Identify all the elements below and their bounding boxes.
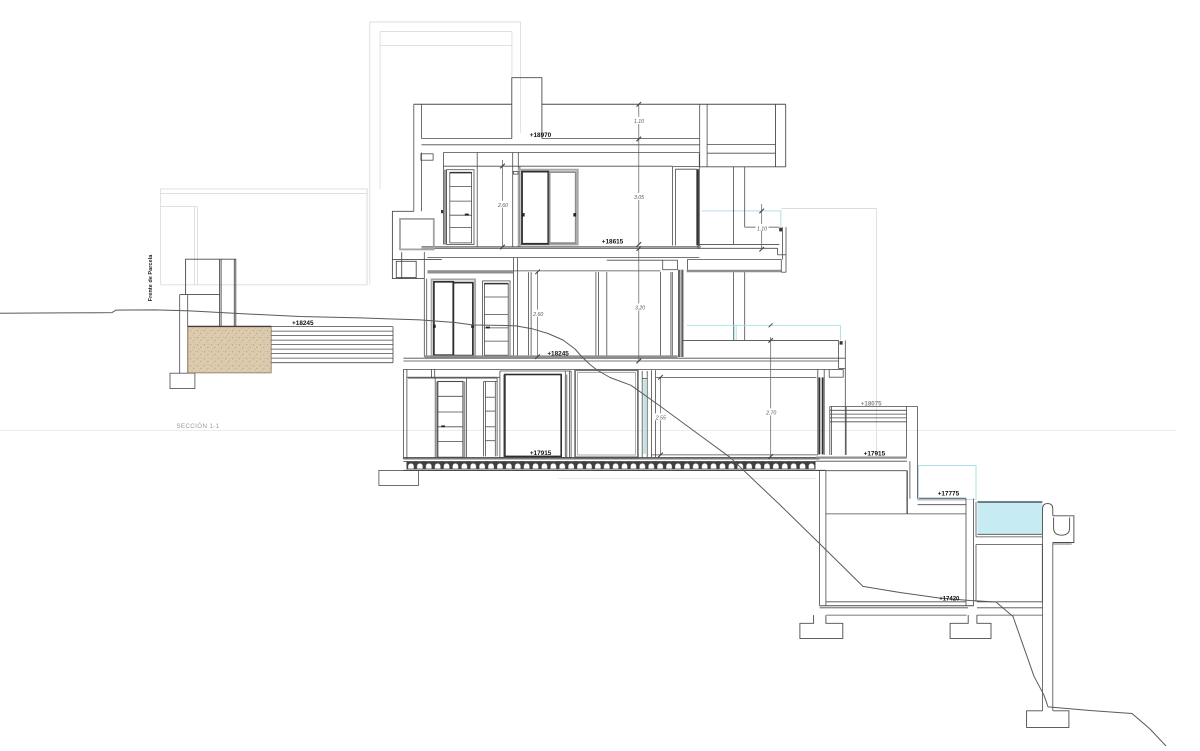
svg-text:+17420: +17420 (939, 596, 960, 602)
svg-text:+17915: +17915 (864, 450, 886, 457)
svg-text:+17775: +17775 (938, 491, 960, 498)
svg-text:+18615: +18615 (602, 239, 624, 246)
svg-text:+18245: +18245 (547, 350, 569, 357)
svg-text:2.70: 2.70 (765, 411, 776, 417)
svg-text:+17915: +17915 (530, 450, 552, 457)
svg-text:2.55: 2.55 (655, 416, 666, 422)
svg-text:2.60: 2.60 (497, 203, 508, 209)
svg-text:3.20: 3.20 (635, 306, 645, 312)
svg-text:1.10: 1.10 (634, 119, 644, 125)
svg-text:1.10: 1.10 (757, 226, 767, 232)
svg-text:+18075: +18075 (861, 401, 882, 408)
svg-text:2.60: 2.60 (532, 312, 543, 318)
svg-text:+18970: +18970 (530, 132, 552, 139)
svg-text:Frente de Parcela: Frente de Parcela (148, 254, 154, 302)
svg-text:+18245: +18245 (292, 320, 314, 327)
svg-text:3.05: 3.05 (634, 195, 644, 201)
svg-text:SECCIÓN 1-1: SECCIÓN 1-1 (176, 423, 219, 430)
